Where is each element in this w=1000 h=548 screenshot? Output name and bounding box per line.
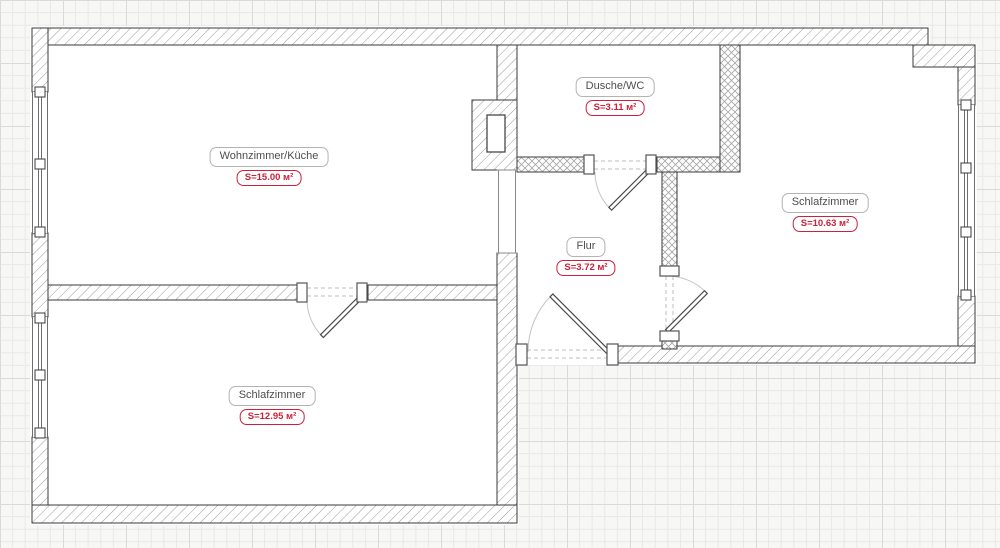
- room-label-wohnzimmer-kueche: Wohnzimmer/Küche S=15.00 м²: [210, 147, 329, 186]
- room-label-schlafzimmer-bottom: Schlafzimmer S=12.95 м²: [229, 386, 316, 425]
- room-label-flur: Flur S=3.72 м²: [556, 237, 615, 276]
- room-name: Schlafzimmer: [782, 193, 869, 213]
- room-name: Dusche/WC: [576, 77, 655, 97]
- room-label-dusche-wc: Dusche/WC S=3.11 м²: [576, 77, 655, 116]
- room-area-badge: S=12.95 м²: [240, 409, 305, 425]
- window-left-1: [32, 87, 48, 237]
- shaft: [487, 115, 505, 152]
- room-area-badge: S=3.72 м²: [556, 260, 615, 276]
- room-area-badge: S=3.11 м²: [586, 100, 645, 116]
- room-area-badge: S=15.00 м²: [237, 170, 302, 186]
- room-area-badge: S=10.63 м²: [793, 216, 858, 232]
- room-label-schlafzimmer-right: Schlafzimmer S=10.63 м²: [782, 193, 869, 232]
- floor-plan-drawing: [0, 0, 1000, 548]
- window-right: [958, 100, 975, 300]
- window-left-2: [32, 313, 48, 438]
- room-name: Schlafzimmer: [229, 386, 316, 406]
- room-name: Wohnzimmer/Küche: [210, 147, 329, 167]
- floor-plan-canvas: Wohnzimmer/Küche S=15.00 м² Dusche/WC S=…: [0, 0, 1000, 548]
- room-name: Flur: [567, 237, 606, 257]
